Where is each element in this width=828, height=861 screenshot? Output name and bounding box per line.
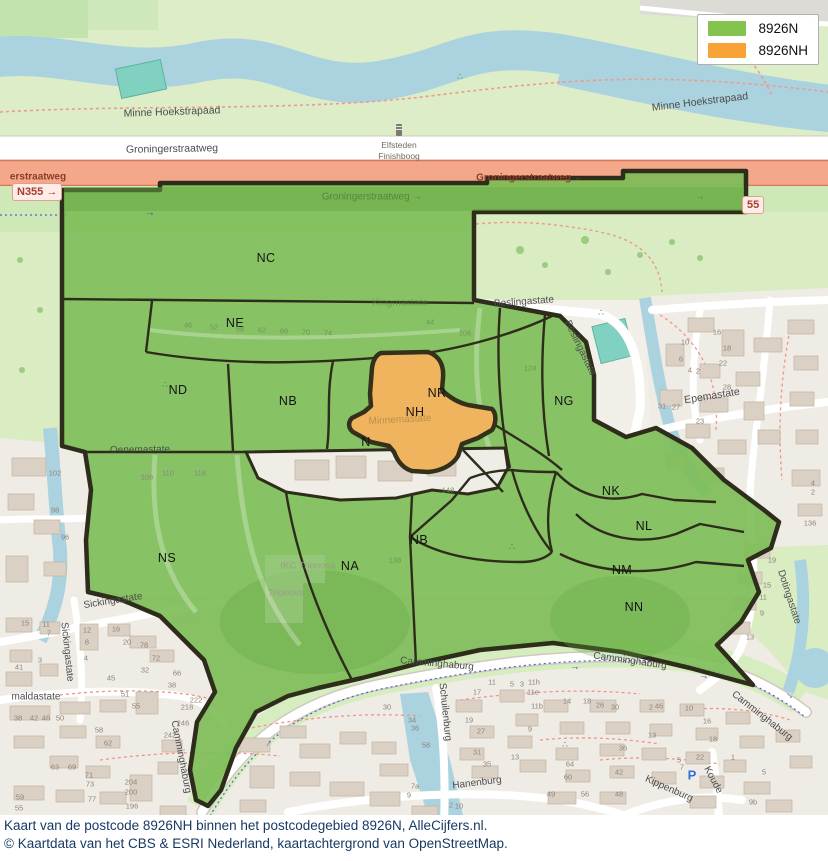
- playground-icon: ∴: [509, 542, 515, 553]
- house-number: 10: [681, 338, 689, 347]
- screenshot-root: NCNENDNBNRNHNNGNKNLNMNNNBNSNA Minne Hoek…: [0, 0, 828, 861]
- house-number: 16: [112, 625, 120, 634]
- house-number: 18: [723, 344, 731, 353]
- house-number: 70: [302, 328, 310, 337]
- landuse-label: Trionova: [268, 588, 305, 599]
- house-number: 46: [655, 702, 663, 711]
- house-number: 31: [658, 402, 666, 411]
- house-number: 41: [15, 663, 23, 672]
- n355-road-badge-right: 55: [742, 196, 764, 214]
- house-number: 42: [615, 768, 623, 777]
- house-number: 19: [465, 716, 473, 725]
- house-number: 52: [210, 323, 218, 332]
- house-number: 51: [121, 690, 129, 699]
- house-number: 45: [107, 674, 115, 683]
- house-number: 71: [85, 771, 93, 780]
- region-label-NN: NN: [625, 600, 644, 614]
- region-label-NR: NR: [428, 386, 447, 400]
- house-number: 7: [47, 629, 51, 638]
- house-number: 46: [42, 714, 50, 723]
- house-number: 13: [648, 731, 656, 740]
- region-label-NA: NA: [341, 559, 359, 573]
- house-number: 58: [95, 726, 103, 735]
- house-number: 38: [168, 681, 176, 690]
- house-number: 110: [162, 469, 174, 478]
- house-number: 38: [14, 714, 22, 723]
- house-number: 15: [763, 581, 771, 590]
- house-number: 4: [811, 479, 815, 488]
- house-number: 11h: [528, 678, 540, 687]
- house-number: 10: [685, 704, 693, 713]
- house-number: 20: [123, 638, 131, 647]
- street-label: Groningerstraatweg: [126, 142, 218, 156]
- house-number: 23: [696, 417, 704, 426]
- house-number: 5: [510, 680, 514, 689]
- house-number: 22: [719, 359, 727, 368]
- street-label: maldastate: [12, 692, 61, 703]
- region-label-NC: NC: [257, 251, 276, 265]
- house-number: 30: [383, 703, 391, 712]
- region-label-N: N: [361, 435, 370, 449]
- house-number: 7: [680, 763, 684, 772]
- house-number: 18: [709, 735, 717, 744]
- house-number: 9: [528, 725, 532, 734]
- region-label-NS: NS: [158, 551, 176, 565]
- legend-item-8926NH: 8926NH: [708, 43, 808, 58]
- house-number: 138: [389, 556, 402, 565]
- house-number: 64: [566, 760, 574, 769]
- street-label: erstraatweg: [10, 172, 66, 183]
- house-number: 73: [86, 780, 94, 789]
- house-number: 27: [477, 727, 485, 736]
- house-number: 60: [564, 773, 572, 782]
- n355-road-badge-left: N355 →: [12, 183, 62, 201]
- house-number: 44: [426, 318, 434, 327]
- playground-icon: ∴: [457, 72, 463, 83]
- house-number: 19: [768, 556, 776, 565]
- house-number: 11: [488, 678, 496, 687]
- house-number: 242: [164, 731, 177, 740]
- house-number: 11: [42, 620, 50, 629]
- house-number: 36: [411, 724, 419, 733]
- landuse-label: IKC Trionova: [281, 561, 336, 572]
- house-number: 98: [51, 506, 59, 515]
- house-number: 2: [811, 488, 815, 497]
- house-number: 55: [15, 804, 23, 813]
- playground-icon: ∴: [562, 740, 568, 751]
- house-number: 28: [723, 383, 731, 392]
- house-number: 36: [619, 744, 627, 753]
- house-number: 8: [85, 638, 89, 647]
- house-number: 63: [51, 763, 59, 772]
- region-label-NG: NG: [554, 394, 574, 408]
- house-number: 124: [524, 364, 537, 373]
- house-number: 2: [696, 367, 700, 376]
- cycle-route-arrow-icon: →: [145, 208, 155, 219]
- house-number: 3: [38, 656, 42, 665]
- region-label-NL: NL: [636, 519, 653, 533]
- house-number: 77: [88, 795, 96, 804]
- house-number: 22: [696, 753, 704, 762]
- elfsteden-monument-icon: [396, 124, 402, 136]
- house-number: 66: [280, 327, 288, 336]
- house-number: 136: [804, 519, 817, 528]
- landuse-label: hoven: [173, 615, 199, 626]
- house-number: 96: [61, 533, 69, 542]
- house-number: 62: [104, 739, 112, 748]
- caption-line-2: © Kaartdata van het CBS & ESRI Nederland…: [4, 835, 828, 853]
- house-number: 6: [679, 355, 683, 364]
- street-label: Kingmastate: [372, 298, 428, 309]
- house-number: 2: [649, 703, 653, 712]
- street-label: Groningerstraatweg →: [322, 192, 423, 203]
- elfsteden-finishboog-label: Elfsteden Finishboog: [378, 140, 420, 161]
- house-number: 56: [581, 790, 589, 799]
- house-number: 9: [760, 609, 764, 618]
- house-number: 42: [30, 714, 38, 723]
- house-number: 148: [442, 486, 455, 495]
- house-number: 9: [407, 791, 411, 800]
- house-number: 1: [731, 753, 735, 762]
- house-number: 9b: [749, 798, 757, 807]
- house-number: 78: [140, 641, 148, 650]
- house-number: 32: [141, 666, 149, 675]
- street-label: →: [695, 192, 705, 203]
- playground-icon: ∴: [598, 308, 604, 319]
- house-number: 66: [173, 669, 181, 678]
- house-number: 59: [16, 793, 24, 802]
- region-label-NM: NM: [612, 563, 632, 577]
- street-label: Oenemastate: [110, 444, 170, 456]
- house-number: 72: [152, 654, 160, 663]
- house-number: 13: [511, 753, 519, 762]
- house-number: 13: [746, 633, 754, 642]
- house-number: 30: [611, 703, 619, 712]
- house-number: 200: [125, 788, 138, 797]
- legend-label: 8926NH: [758, 43, 808, 58]
- playground-icon: ∴: [162, 380, 168, 391]
- house-number: 2: [449, 801, 453, 810]
- cycle-route-arrow-icon: →: [570, 661, 581, 673]
- house-number: 46: [184, 321, 192, 330]
- house-number: 4: [688, 366, 692, 375]
- house-number: 4: [84, 654, 88, 663]
- house-number: 12: [83, 626, 91, 635]
- region-label-NB: NB: [279, 394, 297, 408]
- map-canvas[interactable]: NCNENDNBNRNHNNGNKNLNMNNNBNSNA Minne Hoek…: [0, 0, 828, 815]
- house-number: 246: [177, 719, 190, 728]
- house-number: 11e: [527, 688, 539, 697]
- house-number: 106: [141, 473, 154, 482]
- house-number: 218: [181, 703, 194, 712]
- house-number: 16: [703, 717, 711, 726]
- house-number: 118: [194, 469, 206, 478]
- house-number: 69: [68, 763, 76, 772]
- house-number: 35: [483, 760, 491, 769]
- house-number: 14: [563, 697, 571, 706]
- region-label-NK: NK: [602, 484, 620, 498]
- legend-item-8926N: 8926N: [708, 21, 808, 36]
- house-number: 55: [132, 702, 140, 711]
- region-label-NB: NB: [410, 533, 428, 547]
- house-number: 102: [49, 469, 62, 478]
- parking-icon: P: [688, 768, 697, 783]
- caption-line-1: Kaart van de postcode 8926NH binnen het …: [4, 817, 828, 835]
- house-number: 204: [125, 778, 138, 787]
- house-number: 26: [596, 701, 604, 710]
- house-number: 74: [324, 329, 332, 338]
- legend-swatch: [708, 21, 746, 36]
- house-number: 7a: [411, 782, 419, 791]
- house-number: 16: [713, 328, 721, 337]
- caption-bar: Kaart van de postcode 8926NH binnen het …: [0, 815, 828, 861]
- house-number: 106: [459, 329, 472, 338]
- house-number: 196: [126, 802, 139, 811]
- house-number: 58: [422, 741, 430, 750]
- house-number: 10: [455, 802, 463, 811]
- legend-swatch: [708, 43, 746, 58]
- house-number: 48: [615, 790, 623, 799]
- house-number: 17: [473, 688, 481, 697]
- house-number: 3: [520, 680, 524, 689]
- house-number: 11b: [531, 702, 543, 711]
- map-legend: 8926N8926NH: [697, 14, 819, 65]
- house-number: 31: [473, 748, 481, 757]
- region-label-ND: ND: [169, 383, 188, 397]
- house-number: 62: [258, 326, 266, 335]
- house-number: 15: [21, 619, 29, 628]
- house-number: 27: [672, 403, 680, 412]
- house-number: 18: [583, 697, 591, 706]
- house-number: 5: [762, 768, 766, 777]
- house-number: 50: [56, 714, 64, 723]
- street-label: Groningerstraatweg ←: [476, 173, 584, 184]
- legend-label: 8926N: [758, 21, 798, 36]
- house-number: 49: [547, 790, 555, 799]
- house-number: 58: [236, 325, 244, 334]
- house-number: 11: [759, 593, 767, 602]
